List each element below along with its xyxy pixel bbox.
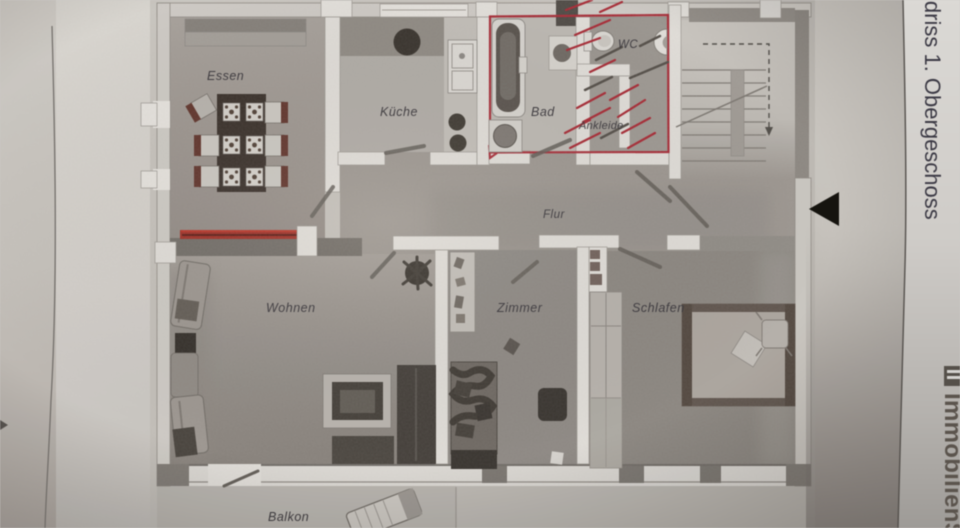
svg-text:Grundriss 1. Obergeschoss: Grundriss 1. Obergeschoss [920,0,945,220]
svg-text:ImmobilienScout24: ImmobilienScout24 [939,393,960,528]
